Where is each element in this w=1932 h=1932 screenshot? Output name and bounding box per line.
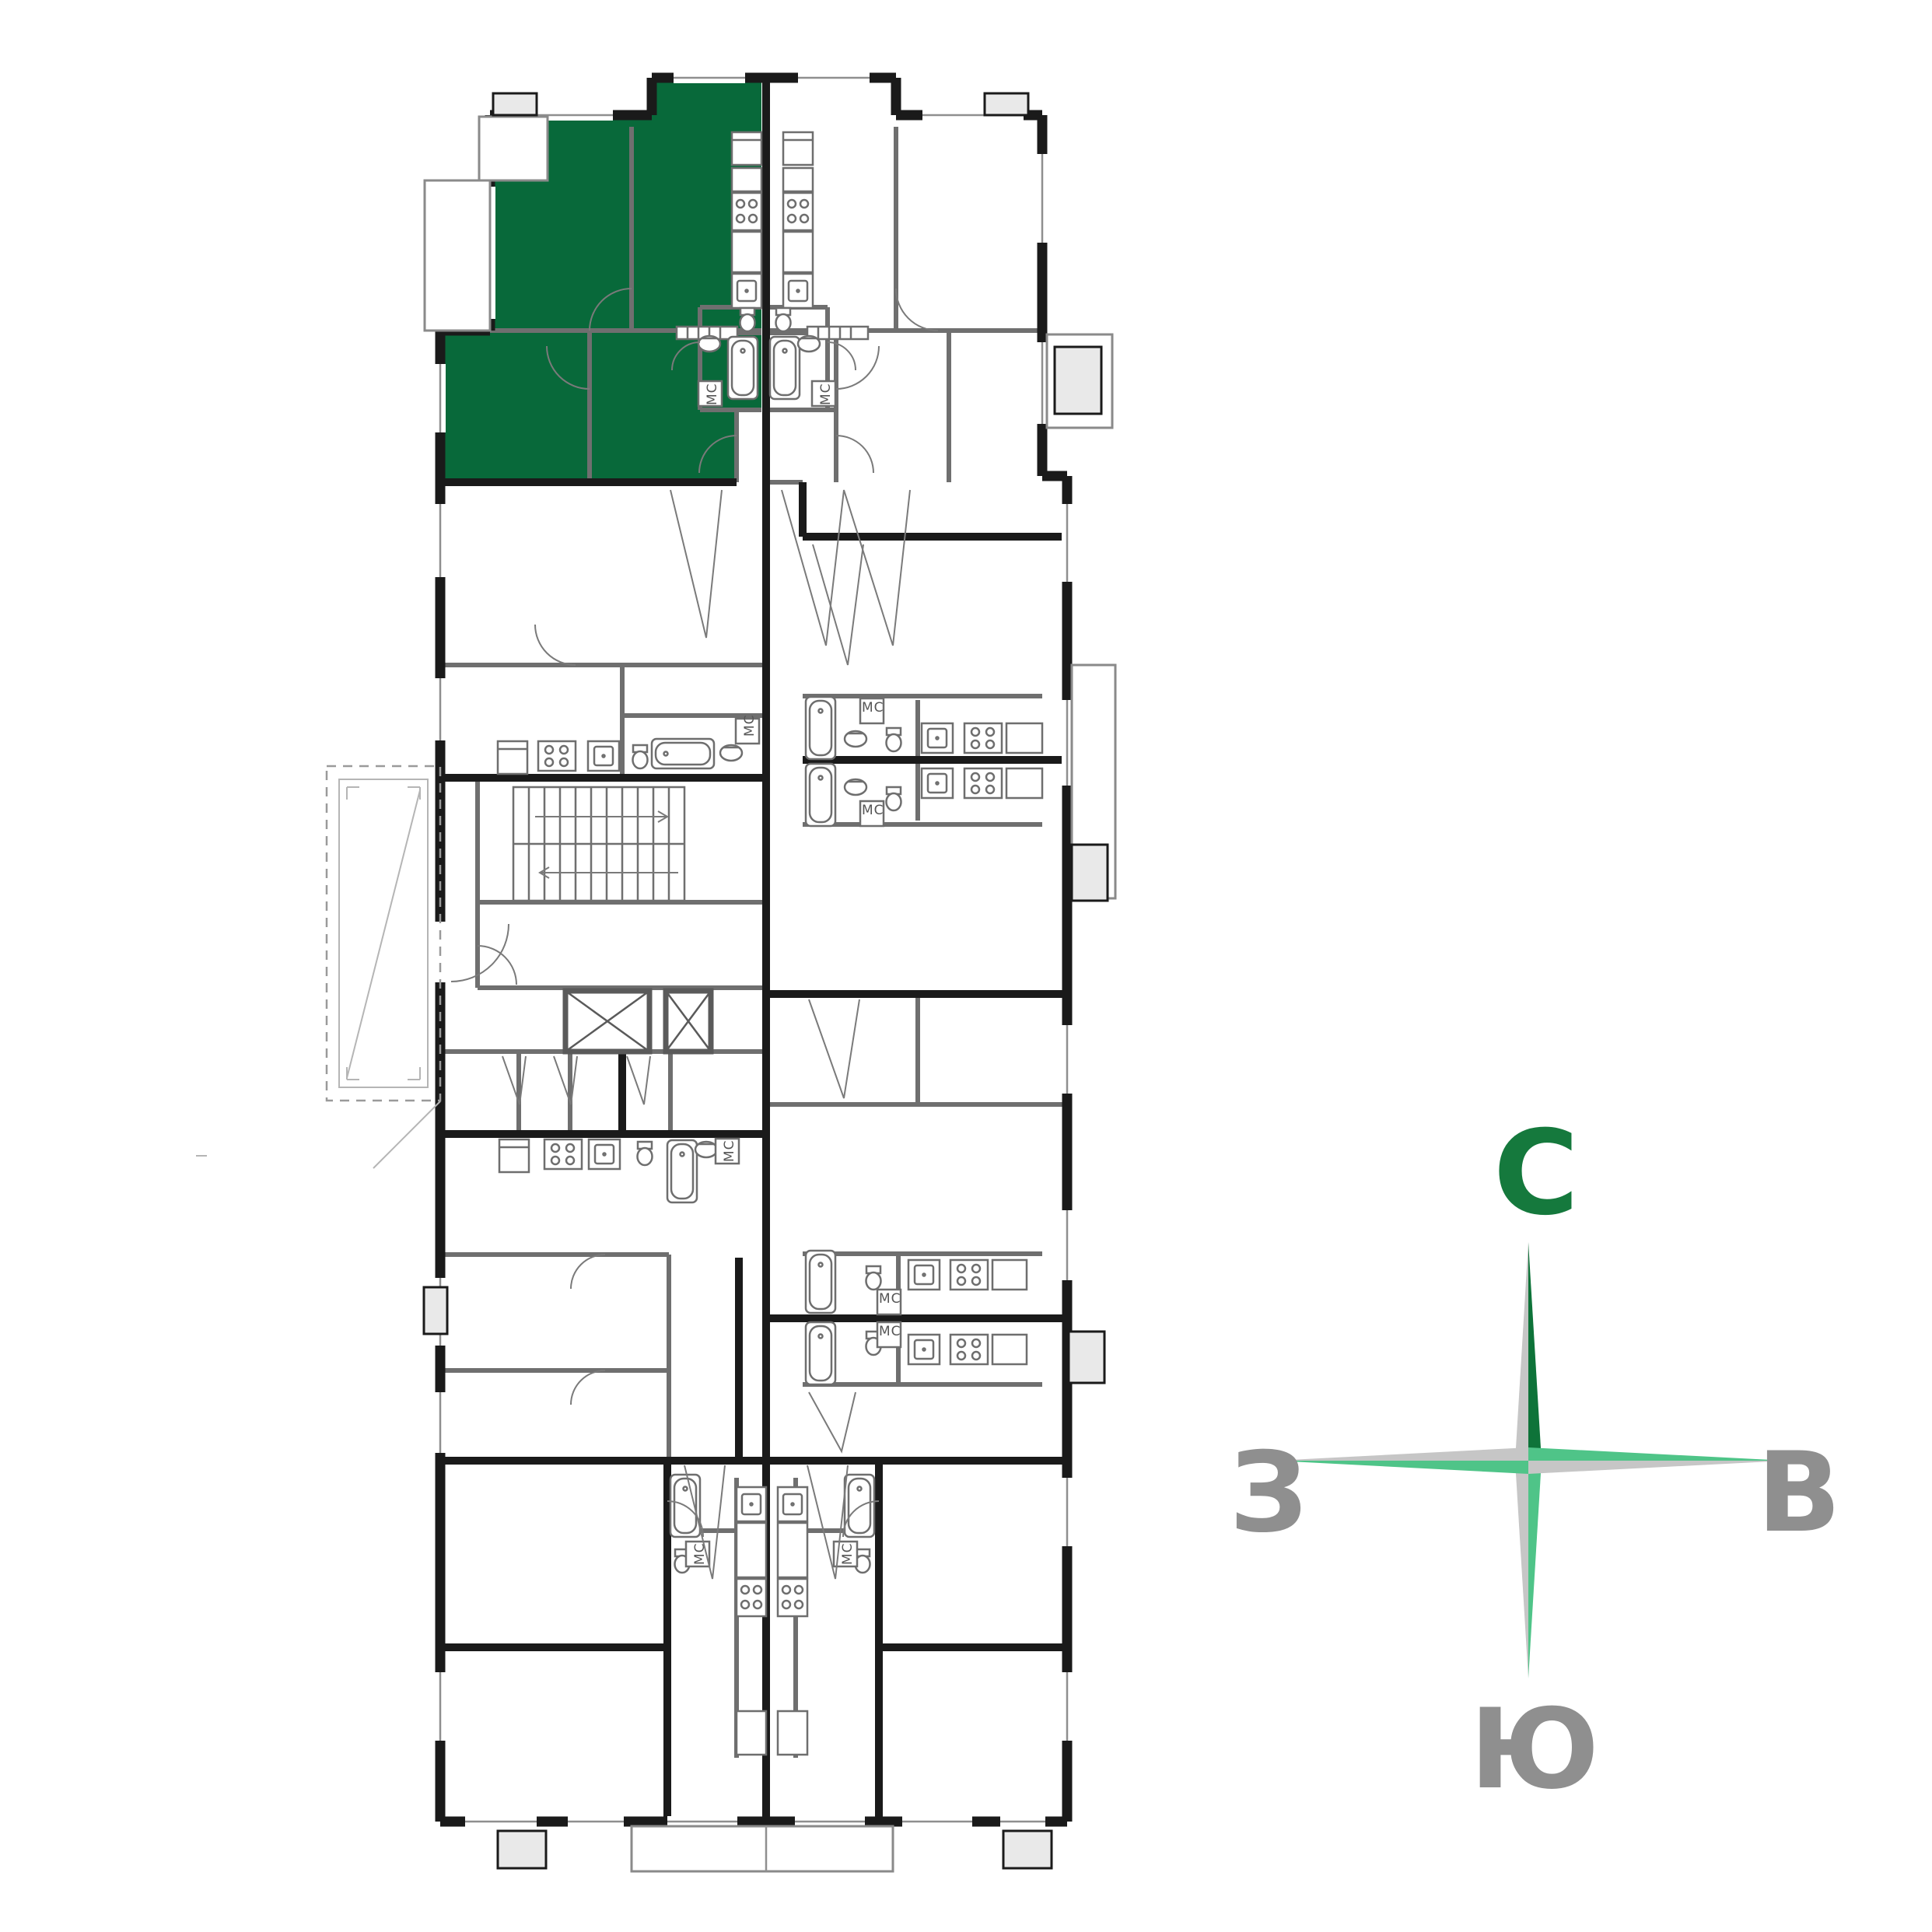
washer-label: МС xyxy=(722,1139,737,1162)
washer-label: МС xyxy=(692,1542,708,1565)
floor-plan-page: МС МС МС МС МС МС МС МС МС МС xyxy=(0,0,1932,1932)
compass-west-label: З xyxy=(1230,1429,1308,1557)
compass-north-label: С xyxy=(1493,1106,1579,1241)
washer-label: МС xyxy=(742,714,758,737)
floor-plan-canvas: МС МС МС МС МС МС МС МС МС МС xyxy=(0,0,1932,1932)
ac-block xyxy=(1055,347,1101,414)
compass-east-label: В xyxy=(1757,1429,1841,1557)
ac-block xyxy=(498,1831,546,1868)
entrance-canopy xyxy=(196,766,440,1168)
staircase xyxy=(513,787,684,901)
washer-label: МС xyxy=(840,1542,856,1565)
ac-block xyxy=(1069,1332,1104,1383)
washer-label: МС xyxy=(705,383,720,405)
elevators xyxy=(565,991,711,1052)
washer-label: МС xyxy=(879,1324,901,1339)
washer-label: МС xyxy=(862,700,884,716)
ac-block xyxy=(424,1287,447,1334)
compass-south-label: Ю xyxy=(1470,1685,1600,1814)
ac-block xyxy=(985,93,1028,115)
compass-south-arm xyxy=(1515,1461,1542,1678)
ac-block xyxy=(493,93,537,115)
washer-labels: МС МС МС МС МС МС МС МС МС МС xyxy=(692,383,901,1565)
compass-north-arm xyxy=(1515,1242,1542,1461)
compass-east-arm xyxy=(1528,1447,1787,1474)
ac-block xyxy=(1072,845,1108,901)
washer-label: МС xyxy=(818,383,834,405)
ac-block xyxy=(1003,1831,1052,1868)
compass-west-arm xyxy=(1276,1447,1528,1474)
compass-rose: С В З Ю xyxy=(1230,1106,1842,1814)
washer-label: МС xyxy=(862,803,884,818)
washer-label: МС xyxy=(879,1291,901,1307)
